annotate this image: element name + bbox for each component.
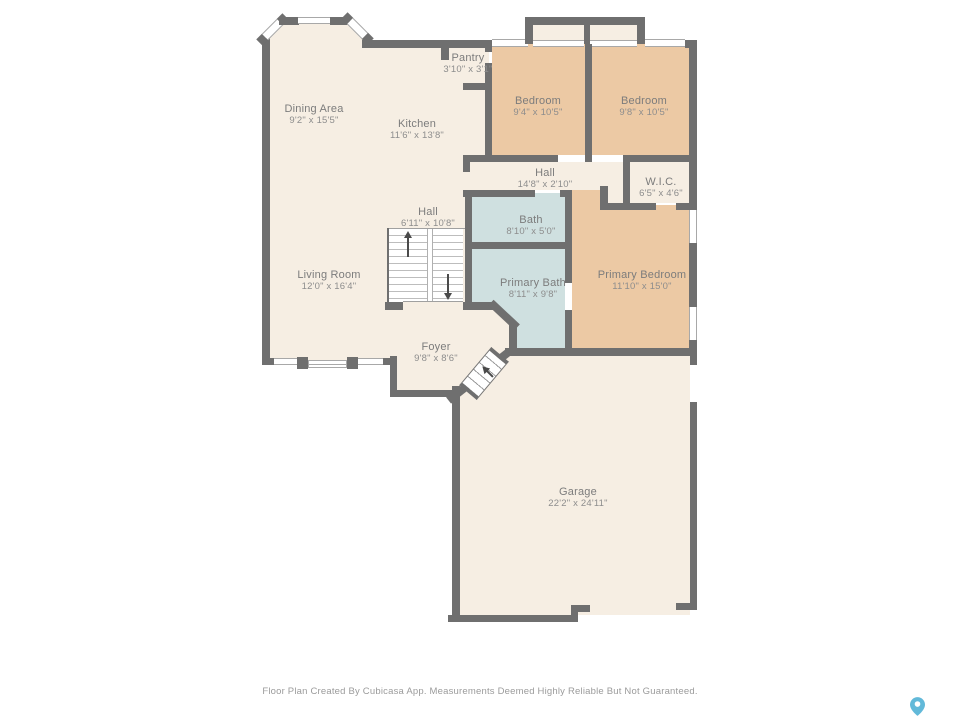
wall [347,357,358,369]
room-label-pantry: Pantry 3'10" x 3'1" [443,52,492,75]
room-name: Pantry [443,52,492,64]
room-name: Bath [506,214,555,226]
room-label-hall-stairs: Hall 6'11" x 10'8" [401,206,455,229]
room-dims: 8'11" x 9'8" [500,289,566,300]
room-dims: 9'4" x 10'5" [513,107,562,118]
room-label-bedroom-2: Bedroom 9'8" x 10'5" [619,95,668,118]
wall [623,155,697,162]
wall [690,352,697,365]
wall [690,402,697,610]
wall [571,605,590,612]
wall [565,190,572,283]
wall [505,348,697,356]
stair-up-arrowhead [404,231,412,238]
room-dims: 6'11" x 10'8" [401,218,455,229]
wall [362,40,492,48]
room-name: Living Room [297,269,360,281]
wall [463,155,470,172]
wall [485,40,492,52]
room-fill-garage [460,352,690,615]
room-label-living-room: Living Room 12'0" x 16'4" [297,269,360,292]
disclaimer-text: Floor Plan Created By Cubicasa App. Meas… [0,686,960,697]
wall [465,242,572,249]
room-label-garage: Garage 22'2" x 24'11" [548,486,607,509]
room-name: Bedroom [513,95,562,107]
room-name: Primary Bedroom [598,269,687,281]
room-fill-dining-living [266,21,366,360]
wall [676,203,690,210]
room-label-primary-bedroom: Primary Bedroom 11'10" x 15'0" [598,269,687,292]
room-label-primary-bath: Primary Bath 8'11" x 9'8" [500,277,566,300]
wall [262,358,274,365]
wall [637,17,645,44]
room-dims: 6'5" x 4'6" [639,188,683,199]
stair-down-arrow [447,274,449,294]
room-name: Bedroom [619,95,668,107]
room-name: Foyer [414,341,458,353]
wall [383,358,397,365]
map-pin-icon [910,697,925,720]
room-dims: 14'8" x 2'10" [518,179,573,190]
room-dims: 3'10" x 3'1" [443,64,492,75]
wall [585,44,592,155]
window [492,39,528,47]
room-dims: 8'10" x 5'0" [506,226,555,237]
room-dims: 11'6" x 13'8" [390,130,444,141]
wall [262,38,270,365]
room-name: Kitchen [390,118,444,130]
room-name: Dining Area [284,103,343,115]
wall [600,203,656,210]
window [689,307,697,340]
wall [297,357,308,369]
wall [585,155,592,162]
room-fill-hall-notch [608,162,623,203]
room-name: Primary Bath [500,277,566,289]
room-dims: 9'8" x 10'5" [619,107,668,118]
room-name: Garage [548,486,607,498]
wall [623,155,630,203]
window [645,39,685,47]
wall [689,40,697,210]
room-label-bath: Bath 8'10" x 5'0" [506,214,555,237]
wall [385,302,403,310]
stair-edge-line [403,301,463,302]
window [533,40,584,47]
window [274,358,297,365]
wall [600,186,608,210]
wall [463,83,487,90]
window [298,17,330,24]
window [689,210,697,243]
room-fill-primary-bedroom-a [572,190,600,348]
wall [392,390,454,397]
box-bay-window [308,360,347,368]
wall [463,155,558,162]
stair-down-arrowhead [444,293,452,300]
stair-up-arrow [407,237,409,257]
room-dims: 11'10" x 15'0" [598,281,687,292]
room-label-kitchen: Kitchen 11'6" x 13'8" [390,118,444,141]
staircase [387,228,465,303]
window [358,358,383,365]
room-dims: 9'2" x 15'5" [284,115,343,126]
wall [448,615,578,622]
wall [463,190,535,197]
room-label-bedroom-1: Bedroom 9'4" x 10'5" [513,95,562,118]
wall [485,63,492,155]
floor-plan: Dining Area 9'2" x 15'5" Kitchen 11'6" x… [0,0,960,720]
wall [689,243,697,307]
room-name: Hall [518,167,573,179]
wall [525,17,533,44]
room-label-wic: W.I.C. 6'5" x 4'6" [639,176,683,199]
room-dims: 12'0" x 16'4" [297,281,360,292]
wall [452,386,460,622]
window [590,40,637,47]
room-name: W.I.C. [639,176,683,188]
room-dims: 22'2" x 24'11" [548,498,607,509]
room-label-dining-area: Dining Area 9'2" x 15'5" [284,103,343,126]
room-label-hall-upper: Hall 14'8" x 2'10" [518,167,573,190]
room-name: Hall [401,206,455,218]
wall [465,190,472,310]
room-dims: 9'8" x 8'6" [414,353,458,364]
wall [279,17,299,25]
room-label-foyer: Foyer 9'8" x 8'6" [414,341,458,364]
